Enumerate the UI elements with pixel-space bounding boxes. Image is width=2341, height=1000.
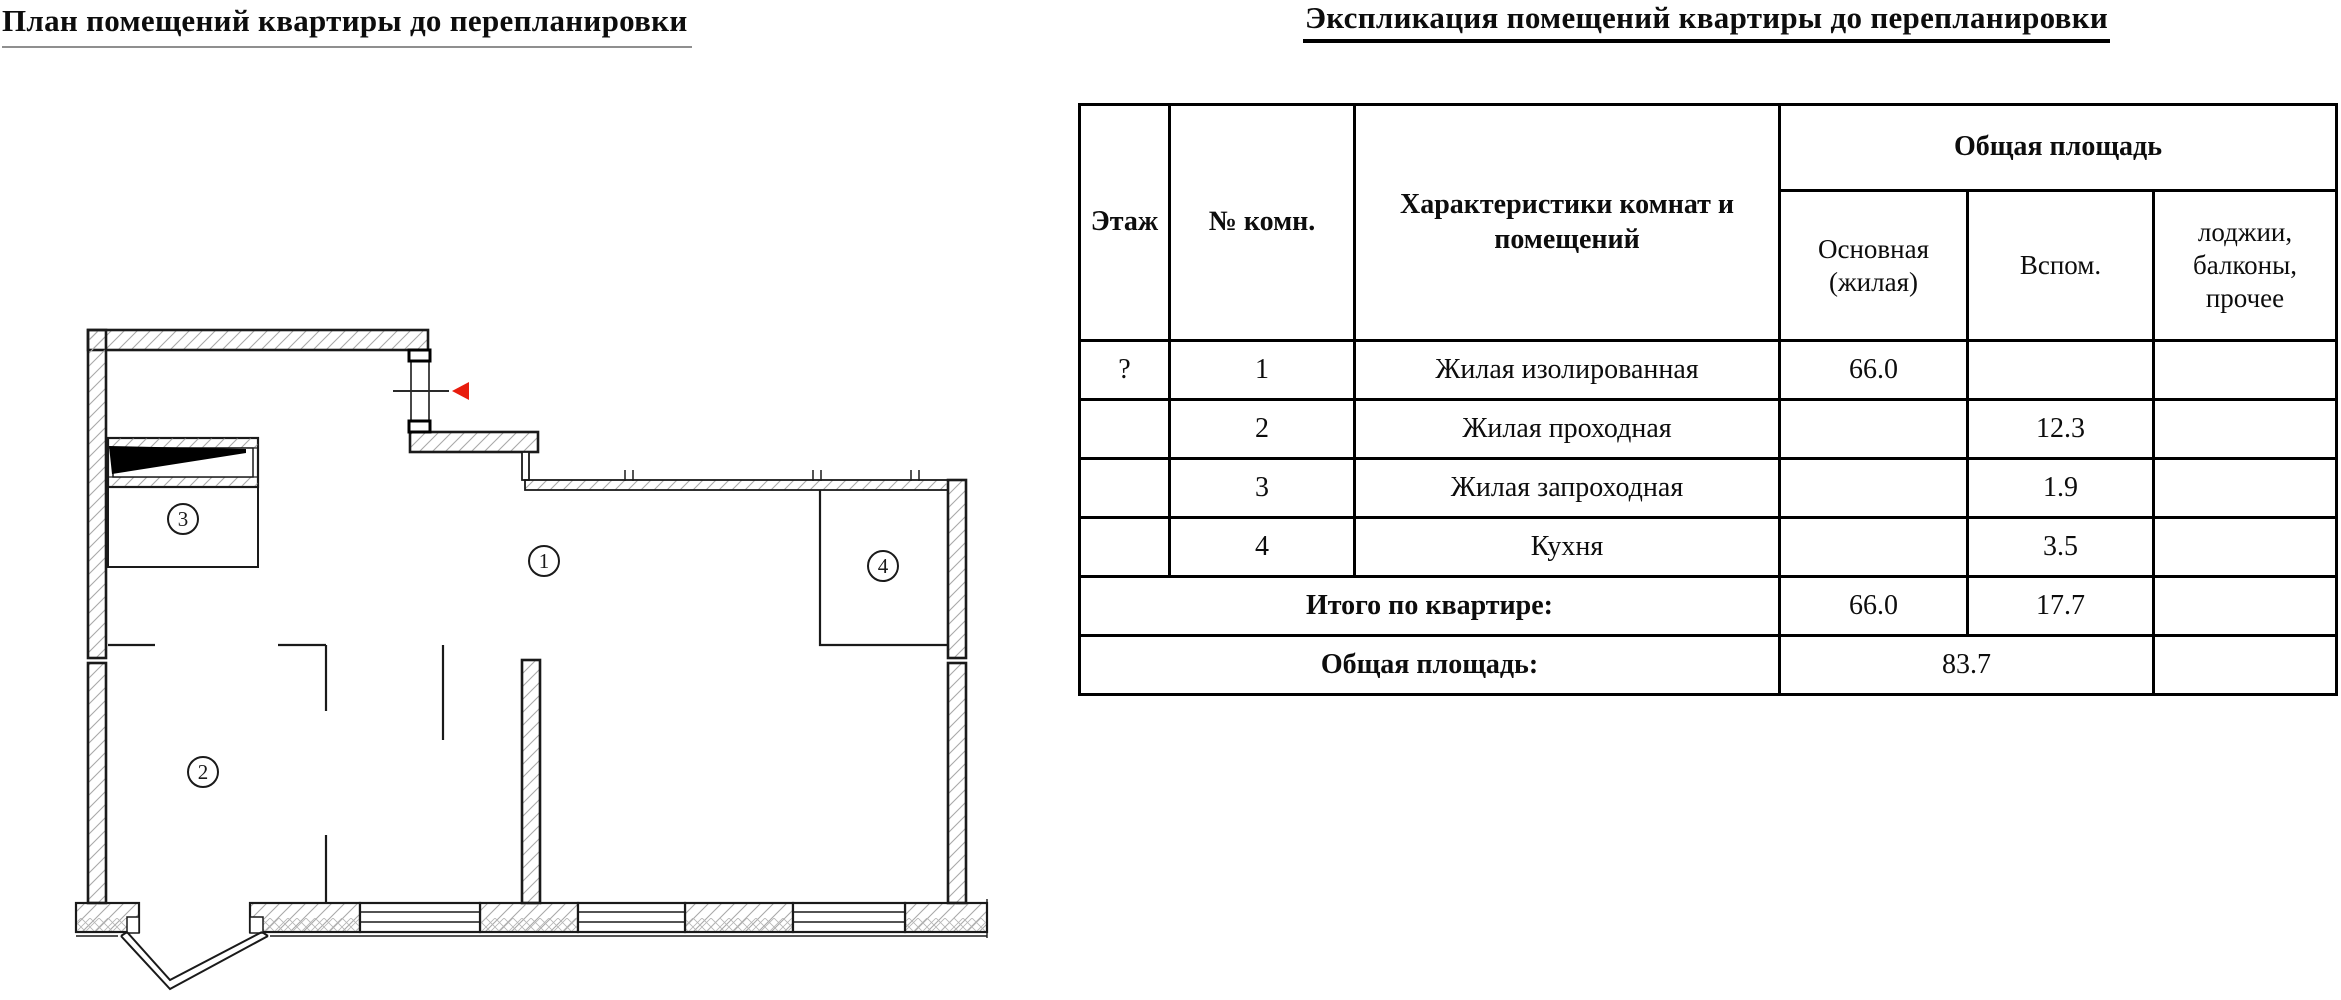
cell-aux-area: 12.3: [1968, 400, 2154, 459]
cell-floor: [1080, 459, 1170, 518]
explication-table: Этаж № комн. Характеристики комнат и пом…: [1078, 103, 2338, 696]
room-1-label: 1: [539, 549, 550, 573]
cell-room-name: Жилая изолированная: [1355, 341, 1780, 400]
cell-room-no: 4: [1170, 518, 1355, 577]
thin-top-wall: [525, 470, 948, 490]
col-header-aux-area: Вспом.: [1968, 191, 2154, 341]
entrance-door: [393, 350, 529, 480]
totals-label: Итого по квартире:: [1080, 577, 1780, 636]
door-jamb-bottom: [409, 421, 430, 432]
overall-value: 83.7: [1780, 636, 2154, 695]
col-header-room-no: № комн.: [1170, 105, 1355, 341]
cell-room-name: Кухня: [1355, 518, 1780, 577]
totals-aux-area: 17.7: [1968, 577, 2154, 636]
room2-partitions: [108, 645, 443, 903]
table-row: 3 Жилая запроходная 1.9: [1080, 459, 2337, 518]
floor-plan-drawing: 1 2 3 4: [0, 0, 1078, 1000]
cell-aux-area: 1.9: [1968, 459, 2154, 518]
right-wall-lower: [948, 663, 966, 903]
cell-loggia: [2154, 459, 2337, 518]
left-wall-upper: [88, 330, 106, 658]
cell-room-name: Жилая запроходная: [1355, 459, 1780, 518]
left-wall-lower: [88, 663, 106, 903]
table-row: 4 Кухня 3.5: [1080, 518, 2337, 577]
cell-main-area: [1780, 400, 1968, 459]
col-header-floor: Этаж: [1080, 105, 1170, 341]
bottom-windows: [360, 903, 905, 932]
explication-title-text: Экспликация помещений квартиры до перепл…: [1303, 0, 2110, 43]
cell-loggia: [2154, 341, 2337, 400]
cell-loggia: [2154, 400, 2337, 459]
cell-main-area: [1780, 459, 1968, 518]
cell-floor: ?: [1080, 341, 1170, 400]
cell-room-no: 1: [1170, 341, 1355, 400]
bay-window: [121, 932, 268, 989]
wardrobe: [108, 438, 258, 487]
entrance-side-wall: [410, 432, 538, 452]
col-header-main-area: Основная (жилая): [1780, 191, 1968, 341]
cell-aux-area: [1968, 341, 2154, 400]
top-wall: [88, 330, 428, 350]
right-wall-upper: [948, 480, 966, 658]
room-4-label: 4: [878, 554, 889, 578]
overall-row: Общая площадь: 83.7: [1080, 636, 2337, 695]
cell-floor: [1080, 400, 1170, 459]
totals-loggia: [2154, 577, 2337, 636]
mid-partition-wall: [522, 660, 540, 903]
cell-main-area: 66.0: [1780, 341, 1968, 400]
cell-loggia: [2154, 518, 2337, 577]
entrance-arrow-icon: [452, 382, 469, 400]
col-header-characteristics: Характеристики комнат и помещений: [1355, 105, 1780, 341]
bay-jamb-left: [127, 917, 139, 933]
totals-main-area: 66.0: [1780, 577, 1968, 636]
room-2-label: 2: [198, 760, 209, 784]
explication-title: Экспликация помещений квартиры до перепл…: [1078, 0, 2335, 43]
table-row: ? 1 Жилая изолированная 66.0: [1080, 341, 2337, 400]
page: План помещений квартиры до перепланировк…: [0, 0, 2341, 1000]
col-header-total-area: Общая площадь: [1780, 105, 2337, 191]
cell-room-no: 3: [1170, 459, 1355, 518]
cell-room-name: Жилая проходная: [1355, 400, 1780, 459]
overall-label: Общая площадь:: [1080, 636, 1780, 695]
wall-step: [522, 452, 529, 480]
cell-aux-area: 3.5: [1968, 518, 2154, 577]
totals-row: Итого по квартире: 66.0 17.7: [1080, 577, 2337, 636]
cell-main-area: [1780, 518, 1968, 577]
bottom-wall: [76, 899, 987, 938]
cell-floor: [1080, 518, 1170, 577]
overall-loggia: [2154, 636, 2337, 695]
room-3-label: 3: [178, 507, 189, 531]
col-header-loggia: лоджии, балконы, прочее: [2154, 191, 2337, 341]
table-row: 2 Жилая проходная 12.3: [1080, 400, 2337, 459]
cell-room-no: 2: [1170, 400, 1355, 459]
door-jamb-top: [409, 350, 430, 361]
bay-jamb-right: [250, 917, 263, 933]
